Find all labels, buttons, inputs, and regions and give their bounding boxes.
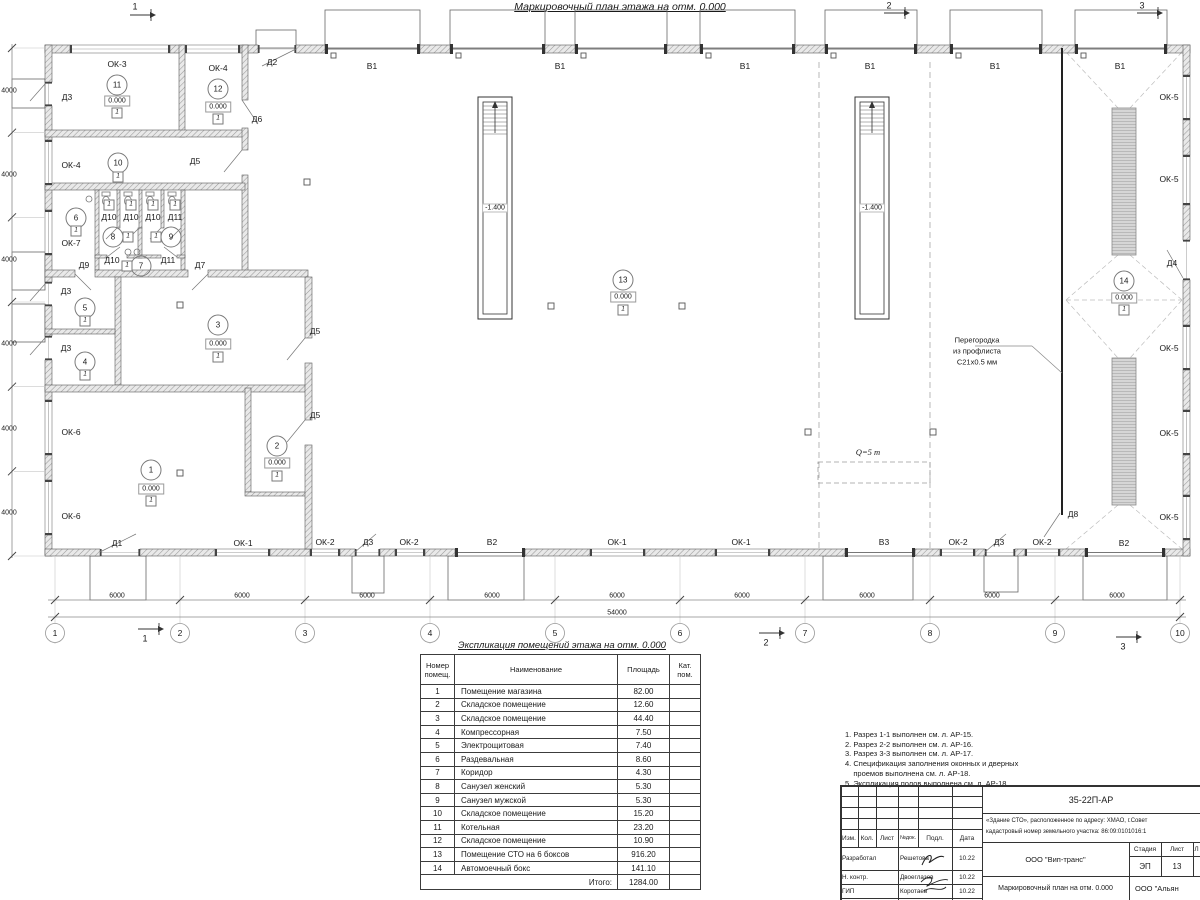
room-name-cell: Складское помещение — [455, 712, 618, 726]
wall-opening-label: Д10 — [104, 256, 119, 265]
wall-opening-label: ОК-6 — [61, 512, 80, 521]
schedule-row: 11Котельная23.20 — [421, 820, 701, 834]
floor-type-marker: 1 — [112, 108, 123, 119]
stage-label: Стадия — [1129, 842, 1161, 856]
note-line: 2. Разрез 2-2 выполнен см. л. АР-16. — [845, 740, 1018, 750]
grid-axis-number: 8 — [928, 629, 933, 638]
grid-axis-number: 6 — [678, 629, 683, 638]
dimension-label: 6000 — [859, 593, 875, 600]
sheet-value: 13 — [1161, 856, 1193, 876]
room-category-cell — [670, 848, 701, 862]
floor-type-marker: 1 — [170, 200, 181, 211]
schedule-row: 14Автомоечный бокс141.10 — [421, 861, 701, 875]
note-line: проемов выполнена см. л. АР-18. — [845, 769, 1018, 779]
room-number: 8 — [103, 227, 124, 248]
section-mark-number: 2 — [763, 639, 768, 648]
elevation-marker: 0.000 — [205, 102, 231, 113]
total-category-cell — [670, 875, 701, 890]
floor-type-marker: 1 — [146, 496, 157, 507]
elevation-marker: 0.000 — [1111, 293, 1137, 304]
wall-opening-label: ОК-6 — [61, 428, 80, 437]
grid-axis-number: 5 — [553, 629, 558, 638]
room-number-cell: 7 — [421, 766, 455, 780]
wall-opening-label: ОК-2 — [948, 538, 967, 547]
wall-opening-label: ОК-7 — [61, 239, 80, 248]
col-room-category: Кат. пом. — [670, 655, 701, 685]
pit-elevation-label: -1.400 — [482, 204, 508, 213]
room-area-cell: 82.00 — [618, 685, 670, 699]
title-block: 35-22П-АР «Здание СТО», расположенное по… — [840, 785, 1200, 900]
schedule-row: 10Складское помещение15.20 — [421, 807, 701, 821]
sig-table-header: Подл. — [918, 829, 952, 847]
room-name-cell: Помещение магазина — [455, 685, 618, 699]
wall-opening-label: Д11 — [161, 256, 176, 265]
room-name-cell: Складское помещение — [455, 698, 618, 712]
schedule-row: 3Складское помещение44.40 — [421, 712, 701, 726]
wall-opening-label: ОК-5 — [1159, 429, 1178, 438]
schedule-title: Экспликация помещений этажа на отм. 0.00… — [420, 640, 704, 651]
dimension-label-vertical: 4000 — [1, 88, 17, 95]
dimension-label: 6000 — [1109, 593, 1125, 600]
wall-opening-label: Д5 — [310, 411, 320, 420]
note-line: 1. Разрез 1-1 выполнен см. л. АР-15. — [845, 730, 1018, 740]
room-name-cell: Санузел женский — [455, 780, 618, 794]
wall-opening-label: Д7 — [195, 261, 205, 270]
room-name-cell: Санузел мужской — [455, 793, 618, 807]
wall-opening-label: Д3 — [994, 538, 1004, 547]
floor-type-marker: 1 — [272, 471, 283, 482]
elevation-marker: 0.000 — [138, 484, 164, 495]
wall-opening-label: Д10 — [145, 213, 160, 222]
crane-capacity-label: Q=5 т — [856, 448, 880, 457]
elevation-marker: 0.000 — [104, 96, 130, 107]
plan-labels: Д2В1В1В1В1В1В1ОК-3ОК-4Д3Д6ОК-4Д5Д10Д10Д1… — [0, 0, 1200, 660]
room-category-cell — [670, 698, 701, 712]
col-room-name: Наименование — [455, 655, 618, 685]
grid-axis-number: 4 — [428, 629, 433, 638]
room-number-cell: 5 — [421, 739, 455, 753]
org2-name: ООО "Альян — [1129, 876, 1200, 900]
wall-opening-label: В1 — [990, 62, 1000, 71]
room-number: 9 — [161, 227, 182, 248]
grid-axis-number: 9 — [1053, 629, 1058, 638]
floor-type-marker: 1 — [618, 305, 629, 316]
schedule-row: 1Помещение магазина82.00 — [421, 685, 701, 699]
wall-opening-label: ОК-2 — [1032, 538, 1051, 547]
room-number: 2 — [267, 436, 288, 457]
org-name: ООО "Вип-транс" — [982, 842, 1129, 876]
wall-opening-label: В2 — [1119, 539, 1129, 548]
drawing-title: Маркировочный план на отм. 0.000 — [982, 876, 1129, 900]
wall-opening-label: В2 — [487, 538, 497, 547]
room-area-cell: 4.30 — [618, 766, 670, 780]
drawing-sheet: { "page_title": "Маркировочный план этаж… — [0, 0, 1200, 900]
room-category-cell — [670, 861, 701, 875]
wall-opening-label: В1 — [1115, 62, 1125, 71]
dimension-label: 6000 — [484, 593, 500, 600]
wall-opening-label: Д11 — [168, 213, 183, 222]
schedule-row: 5Электрощитовая7.40 — [421, 739, 701, 753]
schedule-row: 8Санузел женский5.30 — [421, 780, 701, 794]
elevation-marker: 0.000 — [205, 339, 231, 350]
room-name-cell: Электрощитовая — [455, 739, 618, 753]
dimension-label-vertical: 4000 — [1, 341, 17, 348]
room-number: 12 — [208, 79, 229, 100]
wall-opening-label: В1 — [367, 62, 377, 71]
wall-opening-label: Д10 — [101, 213, 116, 222]
wall-opening-label: ОК-5 — [1159, 175, 1178, 184]
wall-opening-label: В1 — [555, 62, 565, 71]
room-number-cell: 8 — [421, 780, 455, 794]
sig-date: 10.22 — [952, 870, 982, 884]
wall-opening-label: Д5 — [190, 157, 200, 166]
room-category-cell — [670, 780, 701, 794]
wall-opening-label: Д6 — [252, 115, 262, 124]
room-category-cell — [670, 685, 701, 699]
grid-axis-number: 3 — [303, 629, 308, 638]
floor-type-marker: 1 — [80, 316, 91, 327]
room-name-cell: Котельная — [455, 820, 618, 834]
room-number-cell: 14 — [421, 861, 455, 875]
dimension-label-vertical: 4000 — [1, 172, 17, 179]
schedule-row: 13Помещение СТО на 6 боксов916.20 — [421, 848, 701, 862]
grid-axis-number: 7 — [803, 629, 808, 638]
section-mark-number: 3 — [1120, 643, 1125, 652]
wall-opening-label: В3 — [879, 538, 889, 547]
dimension-label: 6000 — [734, 593, 750, 600]
room-number: 10 — [108, 153, 129, 174]
col-room-number: Номер помещ. — [421, 655, 455, 685]
partition-annotation: С21х0.5 мм — [957, 358, 997, 366]
room-number-cell: 10 — [421, 807, 455, 821]
sig-table-header: Кол. — [858, 829, 876, 847]
document-number: 35-22П-АР — [982, 787, 1200, 812]
room-name-cell: Раздевальная — [455, 752, 618, 766]
wall-opening-label: ОК-1 — [607, 538, 626, 547]
room-area-cell: 15.20 — [618, 807, 670, 821]
note-line: 4. Спецификация заполнения оконных и две… — [845, 759, 1018, 769]
project-description-line2: кадастровый номер земельного участка: 86… — [983, 826, 1200, 838]
room-number-cell: 1 — [421, 685, 455, 699]
wall-opening-label: ОК-1 — [731, 538, 750, 547]
wall-opening-label: Д5 — [310, 327, 320, 336]
elevation-marker: 0.000 — [264, 458, 290, 469]
wall-opening-label: ОК-5 — [1159, 344, 1178, 353]
room-category-cell — [670, 834, 701, 848]
notes-block: 1. Разрез 1-1 выполнен см. л. АР-15.2. Р… — [845, 730, 1018, 788]
room-name-cell: Компрессорная — [455, 725, 618, 739]
wall-opening-label: Д9 — [79, 261, 89, 270]
partition-annotation: Перегородка — [955, 336, 1000, 344]
sig-date: 10.22 — [952, 847, 982, 870]
wall-opening-label: Д3 — [61, 287, 71, 296]
room-number-cell: 4 — [421, 725, 455, 739]
wall-opening-label: ОК-5 — [1159, 513, 1178, 522]
wall-opening-label: ОК-2 — [399, 538, 418, 547]
wall-opening-label: ОК-4 — [61, 161, 80, 170]
dimension-label: 54000 — [607, 610, 626, 617]
floor-type-marker: 1 — [148, 200, 159, 211]
section-mark-number: 1 — [142, 635, 147, 644]
wall-opening-label: Д8 — [1068, 510, 1078, 519]
room-category-cell — [670, 807, 701, 821]
sig-table-header: Дата — [952, 829, 982, 847]
sheets-label: Л — [1193, 842, 1200, 856]
wall-opening-label: Д2 — [267, 58, 277, 67]
dimension-label: 6000 — [359, 593, 375, 600]
grid-axis-number: 10 — [1175, 629, 1184, 638]
wall-opening-label: Д3 — [62, 93, 72, 102]
room-name-cell: Автомоечный бокс — [455, 861, 618, 875]
sig-table-header: Лист — [876, 829, 898, 847]
room-area-cell: 141.10 — [618, 861, 670, 875]
dimension-label: 6000 — [609, 593, 625, 600]
dimension-label-vertical: 4000 — [1, 510, 17, 517]
schedule-row: 2Складское помещение12.60 — [421, 698, 701, 712]
room-name-cell: Складское помещение — [455, 807, 618, 821]
floor-type-marker: 1 — [213, 352, 224, 363]
col-room-area: Площадь — [618, 655, 670, 685]
floor-type-marker: 1 — [1119, 305, 1130, 316]
dimension-label: 6000 — [234, 593, 250, 600]
wall-opening-label: Д1 — [112, 539, 122, 548]
room-category-cell — [670, 725, 701, 739]
room-category-cell — [670, 820, 701, 834]
dimension-label: 6000 — [984, 593, 1000, 600]
elevation-marker: 0.000 — [610, 292, 636, 303]
room-number-cell: 3 — [421, 712, 455, 726]
schedule-header-row: Номер помещ. Наименование Площадь Кат. п… — [421, 655, 701, 685]
sig-role: ГИП — [840, 884, 900, 898]
floor-type-marker: 1 — [122, 261, 133, 272]
room-area-cell: 23.20 — [618, 820, 670, 834]
total-label: Итого: — [421, 875, 618, 890]
room-number: 13 — [613, 270, 634, 291]
sig-date: 10.22 — [952, 884, 982, 898]
room-area-cell: 8.60 — [618, 752, 670, 766]
partition-annotation: из профлиста — [953, 347, 1001, 355]
room-schedule-table: Номер помещ. Наименование Площадь Кат. п… — [420, 654, 701, 890]
room-number-cell: 9 — [421, 793, 455, 807]
room-name-cell: Складское помещение — [455, 834, 618, 848]
wall-opening-label: Д3 — [61, 344, 71, 353]
sig-role: Н. контр. — [840, 870, 900, 884]
room-number: 3 — [208, 315, 229, 336]
sig-table-header: №док. — [898, 829, 918, 847]
schedule-row: 7Коридор4.30 — [421, 766, 701, 780]
total-value: 1284.00 — [618, 875, 670, 890]
wall-opening-label: ОК-1 — [233, 539, 252, 548]
floor-type-marker: 1 — [213, 114, 224, 125]
schedule-total-row: Итого:1284.00 — [421, 875, 701, 890]
room-area-cell: 7.50 — [618, 725, 670, 739]
wall-opening-label: Д3 — [363, 538, 373, 547]
room-area-cell: 12.60 — [618, 698, 670, 712]
floor-type-marker: 1 — [113, 172, 124, 183]
room-category-cell — [670, 752, 701, 766]
wall-opening-label: ОК-5 — [1159, 93, 1178, 102]
room-number-cell: 6 — [421, 752, 455, 766]
floor-type-marker: 1 — [71, 226, 82, 237]
section-mark-number: 3 — [1139, 2, 1144, 11]
schedule-row: 9Санузел мужской5.30 — [421, 793, 701, 807]
room-number: 7 — [131, 256, 152, 277]
room-number-cell: 2 — [421, 698, 455, 712]
floor-type-marker: 1 — [151, 232, 162, 243]
floor-type-marker: 1 — [104, 200, 115, 211]
room-area-cell: 916.20 — [618, 848, 670, 862]
room-number-cell: 13 — [421, 848, 455, 862]
wall-opening-label: ОК-2 — [315, 538, 334, 547]
sig-table-header: Изм. — [840, 829, 858, 847]
room-category-cell — [670, 739, 701, 753]
dimension-label-vertical: 4000 — [1, 257, 17, 264]
wall-opening-label: В1 — [740, 62, 750, 71]
schedule-row: 12Складское помещение10.90 — [421, 834, 701, 848]
room-area-cell: 5.30 — [618, 793, 670, 807]
room-name-cell: Помещение СТО на 6 боксов — [455, 848, 618, 862]
sheet-label: Лист — [1161, 842, 1193, 856]
wall-opening-label: Д4 — [1167, 259, 1177, 268]
floor-type-marker: 1 — [126, 200, 137, 211]
wall-opening-label: Д10 — [123, 213, 138, 222]
room-category-cell — [670, 766, 701, 780]
section-mark-number: 2 — [886, 2, 891, 11]
dimension-label: 6000 — [109, 593, 125, 600]
wall-opening-label: В1 — [865, 62, 875, 71]
room-category-cell — [670, 793, 701, 807]
stage-value: ЭП — [1129, 856, 1161, 876]
note-line: 3. Разрез 3-3 выполнен см. л. АР-17. — [845, 749, 1018, 759]
room-number: 11 — [107, 75, 128, 96]
pit-elevation-label: -1.400 — [859, 204, 885, 213]
room-category-cell — [670, 712, 701, 726]
room-number: 1 — [141, 460, 162, 481]
room-number: 14 — [1114, 271, 1135, 292]
wall-opening-label: ОК-3 — [107, 60, 126, 69]
room-area-cell: 10.90 — [618, 834, 670, 848]
sig-role: Разработал — [840, 847, 900, 870]
schedule-row: 6Раздевальная8.60 — [421, 752, 701, 766]
dimension-label-vertical: 4000 — [1, 426, 17, 433]
grid-axis-number: 2 — [178, 629, 183, 638]
room-number-cell: 11 — [421, 820, 455, 834]
room-area-cell: 5.30 — [618, 780, 670, 794]
room-area-cell: 7.40 — [618, 739, 670, 753]
room-name-cell: Коридор — [455, 766, 618, 780]
wall-opening-label: ОК-4 — [208, 64, 227, 73]
section-mark-number: 1 — [132, 3, 137, 12]
floor-type-marker: 1 — [123, 232, 134, 243]
room-number-cell: 12 — [421, 834, 455, 848]
room-area-cell: 44.40 — [618, 712, 670, 726]
grid-axis-number: 1 — [53, 629, 58, 638]
signature — [918, 847, 952, 898]
floor-type-marker: 1 — [80, 370, 91, 381]
schedule-row: 4Компрессорная7.50 — [421, 725, 701, 739]
